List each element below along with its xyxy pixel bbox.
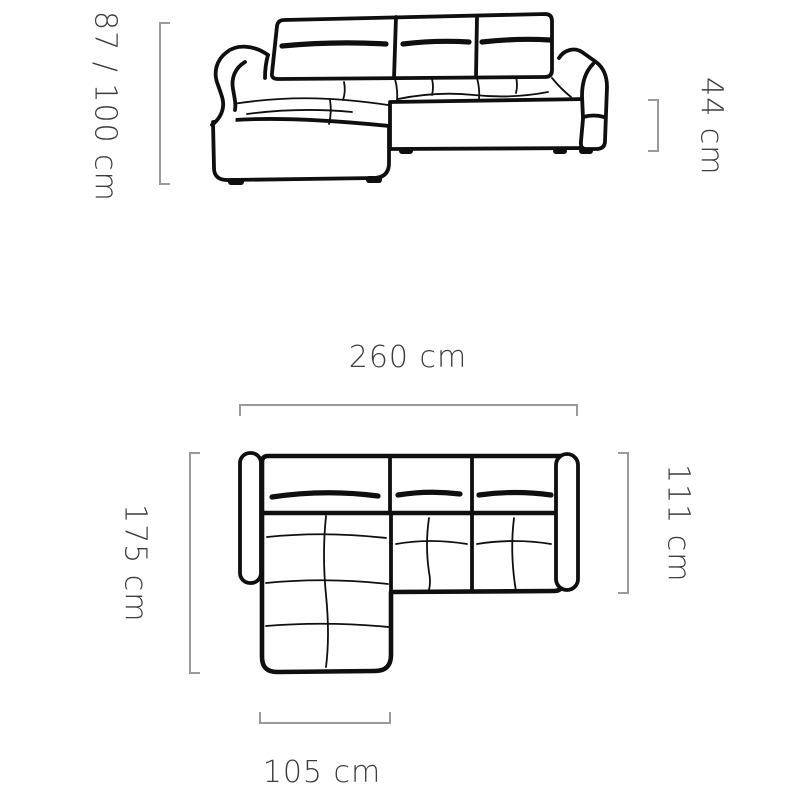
top-right-armrest bbox=[556, 454, 578, 590]
sofa-front-view-drawing bbox=[212, 14, 607, 185]
dimension-label-overall-width: 260 cm bbox=[298, 340, 518, 374]
dimension-label-chaise-depth: 175 cm bbox=[116, 500, 154, 626]
bracket-chaise-depth bbox=[190, 453, 200, 673]
dimension-label-chaise-width: 105 cm bbox=[212, 755, 432, 789]
dimension-label-seat-height: 44 cm bbox=[692, 72, 730, 180]
front-back-divider-left bbox=[394, 17, 396, 78]
front-back-panel bbox=[272, 14, 552, 79]
bracket-overall-width bbox=[240, 405, 577, 416]
top-left-armrest bbox=[240, 453, 261, 583]
bracket-body-depth bbox=[618, 453, 628, 593]
sofa-top-view-drawing bbox=[240, 453, 578, 672]
front-left-armrest bbox=[212, 47, 268, 127]
front-back-divider-right bbox=[476, 16, 477, 77]
bracket-overall-height bbox=[160, 23, 170, 184]
dimension-label-overall-height: 87 / 100 cm bbox=[86, 16, 124, 196]
dimension-diagram: 87 / 100 cm 44 cm 260 cm 175 cm 111 cm 1… bbox=[0, 0, 785, 803]
front-seat-band bbox=[390, 99, 601, 149]
dimension-label-body-depth: 111 cm bbox=[659, 468, 697, 578]
bracket-seat-height bbox=[648, 100, 658, 151]
bracket-chaise-width bbox=[260, 712, 390, 723]
top-body-outline bbox=[262, 456, 562, 672]
front-chaise bbox=[213, 119, 389, 180]
